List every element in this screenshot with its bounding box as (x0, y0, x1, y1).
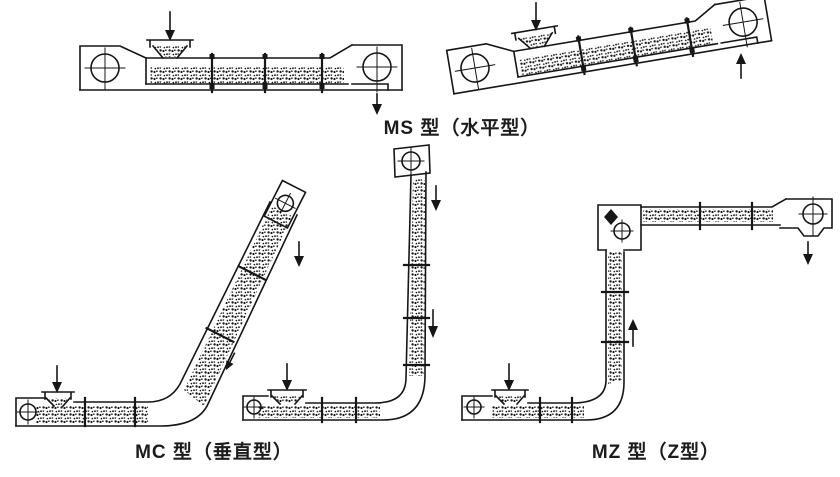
feed-arrow-icon (504, 364, 514, 391)
figure-ink (16, 0, 832, 426)
feed-arrow-icon (165, 12, 175, 41)
head-wheel (780, 197, 832, 236)
mz-z-conveyor-drawing (462, 197, 832, 422)
conveyor-diagrams (0, 0, 840, 477)
discharge-arrow-icon (431, 186, 441, 211)
return-arrow-icon (428, 310, 438, 338)
conveyor-types-figure: MS 型（水平型） MC 型（垂直型） MZ 型（Z型） (0, 0, 840, 477)
corner-wheel (598, 205, 641, 250)
discharge-arrow-icon (372, 94, 382, 115)
mc-inclined-conveyor-drawing (16, 180, 306, 426)
feed-arrow-icon (282, 364, 292, 391)
mc-vertical-conveyor-drawing (243, 145, 441, 422)
feed-arrow-icon (531, 3, 541, 31)
discharge-arrow-icon (803, 242, 813, 265)
feed-arrow-icon (52, 366, 62, 393)
ms-inclined-conveyor-drawing (446, 0, 772, 96)
ms-horizontal-conveyor-drawing (80, 12, 402, 115)
head-wheel (394, 145, 430, 177)
mz-type-label: MZ 型（Z型） (526, 437, 786, 464)
lift-direction-arrow-icon (628, 319, 638, 346)
direction-arrow-icon (736, 53, 746, 78)
discharge-arrow-icon (294, 242, 304, 267)
ms-type-label: MS 型（水平型） (332, 113, 592, 140)
mc-type-label: MC 型（垂直型） (84, 437, 344, 464)
